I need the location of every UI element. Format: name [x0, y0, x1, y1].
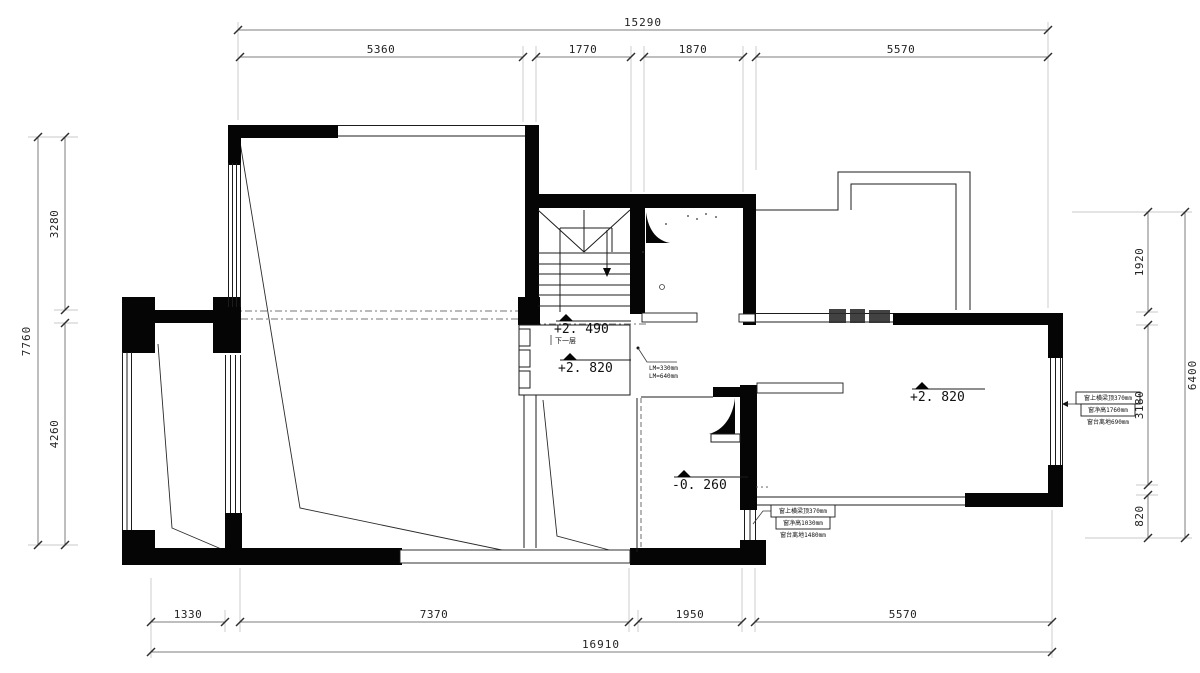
win-right-line2: 窗净高1760mm	[1088, 406, 1128, 414]
level-right-room-value: +2. 820	[910, 390, 965, 405]
win-right-line1: 窗上横梁顶370mm	[1084, 394, 1132, 402]
win-bottom-line3: 窗台离地1480mm	[780, 531, 826, 539]
windows	[123, 126, 1063, 564]
level-marker-sunken: -0. 260	[672, 470, 748, 493]
win-bottom-line1: 窗上横梁顶370mm	[779, 507, 827, 515]
dim-right-s3: 820	[1133, 505, 1146, 526]
level-landing-value: +2. 820	[558, 361, 613, 376]
dim-right-s1: 1920	[1133, 248, 1146, 277]
dim-bottom-total: 16910	[582, 638, 620, 651]
dim-left-s2: 4260	[48, 420, 61, 449]
dim-right-total: 6400	[1186, 360, 1199, 391]
win-bottom-line2: 窗净高1030mm	[783, 519, 823, 527]
dim-top-s1: 5360	[367, 43, 396, 56]
dim-top-s3: 1870	[679, 43, 708, 56]
level-marker-right-room: +2. 820	[910, 382, 985, 405]
level-marker-stair: +2. 490 下一层	[551, 314, 631, 345]
overhead-dashed-lines	[125, 311, 648, 552]
dim-top-total: 15290	[624, 16, 662, 29]
dim-bottom-s3: 1950	[676, 608, 705, 621]
door-swing-hall	[646, 212, 670, 243]
stair-direction-arrow	[603, 268, 611, 277]
dim-top-s2: 1770	[569, 43, 598, 56]
window-annotation-bottom: 窗上横梁顶370mm 窗净高1030mm 窗台离地1480mm	[753, 505, 835, 539]
lm-note: LM=330mm LM=640mm	[637, 347, 679, 381]
lm-note-line1: LM=330mm	[649, 365, 678, 372]
floorplan-drawing: +2. 490 下一层 +2. 820 +2. 820 -0. 260 LM=3…	[0, 0, 1200, 673]
level-stair-value: +2. 490	[554, 322, 609, 337]
level-sunken-value: -0. 260	[672, 478, 727, 493]
walls	[122, 125, 1063, 565]
dim-left: 7760 3280 4260	[20, 133, 69, 549]
win-right-line3: 窗台离地690mm	[1087, 418, 1129, 426]
window-annotation-right: 窗上横梁顶370mm 窗净高1760mm 窗台离地690mm	[1062, 392, 1140, 426]
door-swing-sunken-room	[709, 398, 735, 434]
dim-left-total: 7760	[20, 326, 33, 357]
watermark-fragment	[829, 309, 890, 323]
dim-right-s2: 3180	[1133, 391, 1146, 420]
floorplan-canvas: +2. 490 下一层 +2. 820 +2. 820 -0. 260 LM=3…	[0, 0, 1200, 673]
dim-bottom-s1: 1330	[174, 608, 203, 621]
terrace-outline	[756, 172, 970, 310]
dim-bottom: 1330 7370 1950 5570 16910	[147, 608, 1056, 656]
level-marker-landing: +2. 820	[558, 353, 631, 376]
door-swings	[646, 212, 740, 442]
dim-bottom-s4: 5570	[889, 608, 918, 621]
dim-top: 15290 5360 1770 1870 5570	[234, 16, 1052, 61]
stair-down-note: 下一层	[555, 337, 576, 345]
dim-left-s1: 3280	[48, 210, 61, 239]
dim-bottom-s2: 7370	[420, 608, 449, 621]
dim-right: 1920 3180 820 6400	[1133, 208, 1199, 542]
dim-top-s4: 5570	[887, 43, 916, 56]
lm-note-line2: LM=640mm	[649, 373, 678, 380]
